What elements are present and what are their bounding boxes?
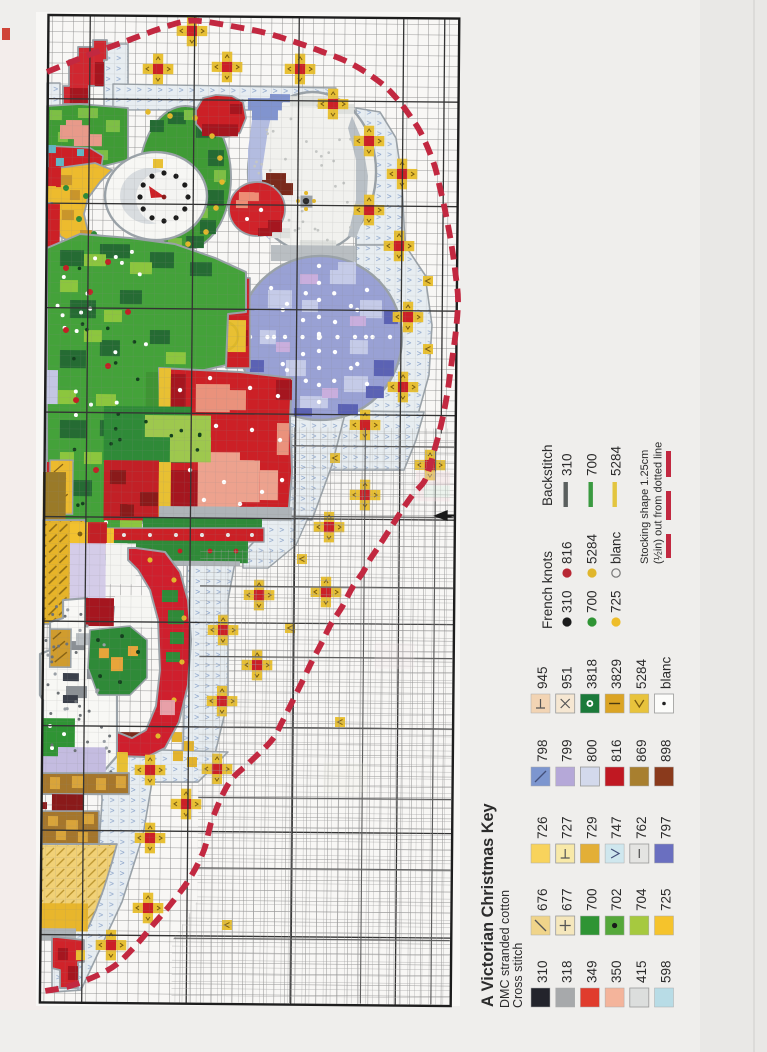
svg-text:598: 598 xyxy=(659,960,674,983)
svg-text:729: 729 xyxy=(584,816,599,839)
svg-text:310: 310 xyxy=(560,453,575,476)
svg-text:945: 945 xyxy=(535,666,550,689)
svg-text:677: 677 xyxy=(560,888,575,911)
svg-text:700: 700 xyxy=(585,590,600,613)
svg-text:869: 869 xyxy=(634,739,649,762)
svg-text:blanc: blanc xyxy=(659,656,674,689)
svg-text:5284: 5284 xyxy=(634,658,649,689)
svg-text:DMC stranded cotton: DMC stranded cotton xyxy=(498,890,512,1008)
svg-text:747: 747 xyxy=(609,816,624,839)
svg-text:415: 415 xyxy=(634,960,649,983)
svg-text:310: 310 xyxy=(560,590,575,613)
svg-text:310: 310 xyxy=(535,960,550,983)
svg-text:762: 762 xyxy=(634,816,649,839)
svg-text:5284: 5284 xyxy=(585,533,600,564)
svg-text:725: 725 xyxy=(659,888,674,911)
svg-text:3818: 3818 xyxy=(584,659,599,689)
svg-text:3829: 3829 xyxy=(609,659,624,689)
svg-text:700: 700 xyxy=(585,453,600,476)
svg-text:702: 702 xyxy=(609,888,624,911)
svg-text:816: 816 xyxy=(609,739,624,762)
svg-text:898: 898 xyxy=(659,739,674,762)
svg-text:676: 676 xyxy=(535,888,550,911)
svg-text:350: 350 xyxy=(609,960,624,983)
svg-text:798: 798 xyxy=(535,739,550,762)
svg-text:Cross stitch: Cross stitch xyxy=(511,943,525,1008)
svg-text:816: 816 xyxy=(560,541,575,564)
svg-text:349: 349 xyxy=(584,960,599,983)
svg-text:blanc: blanc xyxy=(609,531,624,564)
svg-text:797: 797 xyxy=(659,816,674,839)
svg-text:Backstitch: Backstitch xyxy=(540,444,555,506)
svg-text:727: 727 xyxy=(560,816,575,839)
svg-text:700: 700 xyxy=(584,888,599,911)
svg-text:5284: 5284 xyxy=(609,445,624,476)
svg-text:725: 725 xyxy=(609,590,624,613)
svg-text:800: 800 xyxy=(584,739,599,762)
svg-text:726: 726 xyxy=(535,816,550,839)
svg-text:(½in) out from dotted line: (½in) out from dotted line xyxy=(653,442,665,564)
svg-text:318: 318 xyxy=(560,960,575,983)
svg-text:French knots: French knots xyxy=(540,551,555,629)
svg-text:Stocking shape 1.25cm: Stocking shape 1.25cm xyxy=(639,450,651,564)
svg-text:704: 704 xyxy=(634,888,649,911)
svg-text:A Victorian Christmas Key: A Victorian Christmas Key xyxy=(479,803,497,1007)
svg-text:799: 799 xyxy=(560,739,575,762)
svg-text:951: 951 xyxy=(560,666,575,689)
